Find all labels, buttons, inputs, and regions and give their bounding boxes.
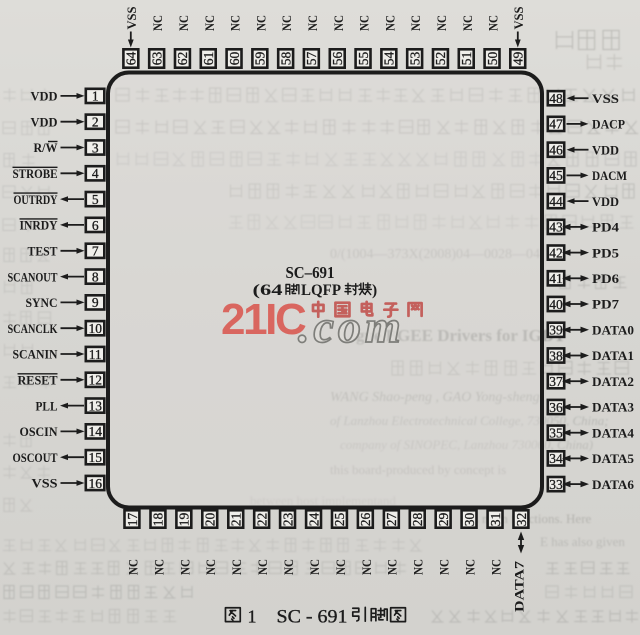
- svg-text:VDD: VDD: [592, 142, 619, 157]
- svg-text:RESET: RESET: [18, 374, 59, 388]
- svg-text:50: 50: [485, 52, 500, 66]
- svg-text:NC: NC: [435, 15, 449, 31]
- svg-text:NC: NC: [489, 559, 503, 575]
- svg-text:24: 24: [306, 513, 321, 527]
- svg-text:VDD: VDD: [592, 194, 619, 209]
- svg-text:7: 7: [92, 244, 99, 259]
- svg-text:NC: NC: [334, 559, 348, 575]
- svg-text:OSCOUT: OSCOUT: [13, 451, 59, 465]
- svg-text:47: 47: [549, 117, 563, 132]
- svg-text:54: 54: [382, 52, 397, 66]
- svg-text:9: 9: [92, 295, 99, 310]
- svg-text:25: 25: [332, 513, 347, 527]
- svg-text:SC - 691: SC - 691: [277, 607, 348, 628]
- svg-text:NC: NC: [204, 559, 218, 575]
- svg-text:NC: NC: [461, 15, 475, 31]
- svg-text:NC: NC: [152, 559, 166, 575]
- svg-text:NC: NC: [230, 559, 244, 575]
- svg-text:48: 48: [549, 91, 563, 106]
- svg-text:VDD: VDD: [31, 115, 58, 129]
- svg-text:3: 3: [92, 140, 99, 155]
- svg-text:NC: NC: [177, 15, 191, 31]
- svg-text:DACP: DACP: [592, 117, 625, 132]
- svg-text:21: 21: [229, 513, 244, 527]
- svg-text:19: 19: [177, 513, 192, 527]
- svg-text:15: 15: [88, 450, 102, 465]
- svg-text:NC: NC: [332, 15, 346, 31]
- svg-text:28: 28: [410, 513, 425, 527]
- svg-text:NC: NC: [409, 15, 423, 31]
- svg-text:SCANIN: SCANIN: [13, 348, 58, 362]
- svg-text:31: 31: [488, 513, 503, 527]
- svg-text:NC: NC: [464, 559, 478, 575]
- svg-text:PD4: PD4: [592, 220, 620, 235]
- svg-text:58: 58: [278, 52, 293, 66]
- svg-text:NC: NC: [386, 559, 400, 575]
- svg-text:VSS: VSS: [125, 6, 139, 29]
- svg-text:27: 27: [384, 513, 399, 527]
- svg-text:NC: NC: [308, 559, 322, 575]
- svg-text:TEST: TEST: [28, 245, 59, 259]
- svg-text:NC: NC: [254, 15, 268, 31]
- svg-text:NC: NC: [178, 559, 192, 575]
- svg-text:44: 44: [549, 194, 563, 209]
- svg-text:6: 6: [92, 218, 99, 233]
- svg-text:30: 30: [462, 513, 477, 527]
- svg-text:PD5: PD5: [592, 245, 620, 260]
- svg-text:20: 20: [203, 513, 218, 527]
- svg-text:8: 8: [92, 269, 99, 284]
- svg-text:49: 49: [511, 52, 526, 66]
- svg-text:46: 46: [549, 143, 563, 158]
- svg-text:61: 61: [201, 52, 216, 66]
- svg-text:55: 55: [356, 52, 371, 66]
- svg-text:NC: NC: [229, 15, 243, 31]
- svg-text:10: 10: [88, 321, 102, 336]
- svg-text:NC: NC: [126, 559, 140, 575]
- svg-text:5: 5: [92, 192, 99, 207]
- svg-text:DATA7: DATA7: [512, 560, 527, 612]
- svg-text:DACM: DACM: [592, 168, 627, 183]
- svg-text:NC: NC: [282, 559, 296, 575]
- svg-text:18: 18: [151, 513, 166, 527]
- svg-text:DATA5: DATA5: [592, 451, 635, 466]
- svg-text:NC: NC: [383, 15, 397, 31]
- svg-text:DATA6: DATA6: [592, 477, 635, 492]
- svg-text:37: 37: [549, 374, 563, 389]
- svg-text:41: 41: [549, 271, 563, 286]
- svg-text:NC: NC: [151, 15, 165, 31]
- svg-text:52: 52: [433, 52, 448, 66]
- svg-text:DATA3: DATA3: [592, 400, 635, 415]
- svg-text:40: 40: [549, 297, 563, 312]
- svg-text:NC: NC: [412, 559, 426, 575]
- svg-text:23: 23: [280, 513, 295, 527]
- svg-text:53: 53: [407, 52, 422, 66]
- svg-text:26: 26: [358, 513, 373, 527]
- svg-text:34: 34: [549, 451, 563, 466]
- svg-text:2: 2: [92, 115, 99, 130]
- svg-text:NC: NC: [306, 15, 320, 31]
- svg-text:NC: NC: [358, 15, 372, 31]
- svg-text:VSS: VSS: [32, 477, 58, 491]
- svg-text:DATA1: DATA1: [592, 348, 634, 363]
- svg-text:1: 1: [92, 89, 99, 104]
- svg-text:LQFP: LQFP: [301, 282, 342, 299]
- svg-text:SC–691: SC–691: [286, 263, 335, 282]
- svg-text:OSCIN: OSCIN: [20, 425, 58, 439]
- svg-text:64: 64: [124, 52, 139, 66]
- svg-text:DATA2: DATA2: [592, 374, 634, 389]
- svg-text:12: 12: [88, 373, 102, 388]
- svg-text:STROBE: STROBE: [13, 167, 58, 181]
- svg-text:PD6: PD6: [592, 271, 620, 286]
- svg-text:42: 42: [549, 245, 563, 260]
- svg-text:VSS: VSS: [592, 91, 619, 106]
- svg-text:PLL: PLL: [36, 399, 58, 413]
- svg-text:E has also given: E has also given: [540, 534, 625, 549]
- svg-text:NC: NC: [280, 15, 294, 31]
- svg-text:36: 36: [549, 400, 563, 415]
- svg-text:62: 62: [175, 52, 190, 66]
- svg-text:1: 1: [248, 607, 257, 627]
- svg-text:NC: NC: [360, 559, 374, 575]
- svg-text:56: 56: [330, 52, 345, 66]
- svg-text:14: 14: [88, 424, 102, 439]
- svg-text:NC: NC: [203, 15, 217, 31]
- svg-text:13: 13: [88, 398, 102, 413]
- svg-text:NC: NC: [438, 559, 452, 575]
- svg-text:NC: NC: [256, 559, 270, 575]
- svg-text:SCANCLK: SCANCLK: [8, 322, 58, 336]
- svg-text:R/W: R/W: [34, 141, 58, 155]
- svg-text:INRDY: INRDY: [20, 219, 58, 233]
- svg-text:35: 35: [549, 426, 563, 441]
- svg-text:60: 60: [227, 52, 242, 66]
- svg-text:51: 51: [459, 52, 474, 66]
- svg-text:NC: NC: [487, 15, 501, 31]
- svg-text:OUTRDY: OUTRDY: [14, 193, 58, 207]
- svg-text:57: 57: [304, 52, 319, 66]
- svg-text:11: 11: [89, 347, 102, 362]
- svg-text:VDD: VDD: [31, 90, 58, 104]
- svg-text:29: 29: [436, 513, 451, 527]
- svg-text:43: 43: [549, 220, 563, 235]
- svg-text:): ): [372, 282, 377, 299]
- svg-text:4: 4: [92, 166, 99, 181]
- svg-text:45: 45: [549, 168, 563, 183]
- svg-text:VSS: VSS: [512, 6, 526, 29]
- svg-text:17: 17: [125, 513, 140, 527]
- svg-text:SCANOUT: SCANOUT: [8, 270, 59, 284]
- svg-text:21IC: 21IC: [221, 295, 306, 344]
- svg-text:PD7: PD7: [592, 297, 620, 312]
- svg-text:SYNC: SYNC: [26, 296, 58, 310]
- svg-text:59: 59: [253, 52, 268, 66]
- svg-text:DATA4: DATA4: [592, 425, 635, 440]
- svg-text:33: 33: [549, 477, 563, 492]
- svg-text:32: 32: [514, 513, 529, 527]
- svg-text:38: 38: [549, 348, 563, 363]
- svg-text:DATA0: DATA0: [592, 323, 634, 338]
- svg-text:63: 63: [149, 52, 164, 66]
- svg-text:16: 16: [88, 476, 102, 491]
- svg-text:39: 39: [549, 323, 563, 338]
- svg-text:22: 22: [254, 513, 269, 527]
